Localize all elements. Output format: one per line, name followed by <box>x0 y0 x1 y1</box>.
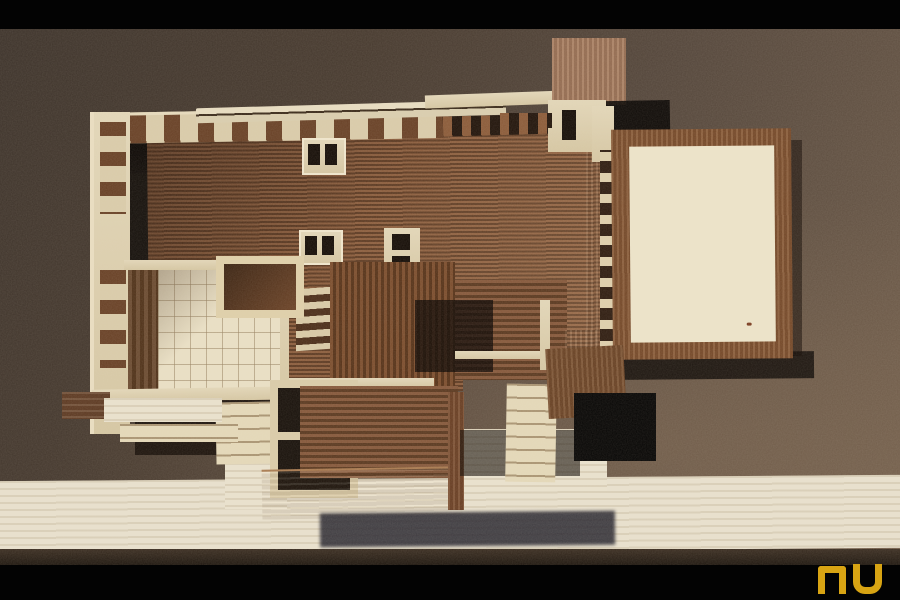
skylight-1-opening-right <box>325 144 337 165</box>
wing-cast-shadow <box>320 511 615 548</box>
wing-roof <box>300 386 458 478</box>
frame-left-slats-lower <box>100 270 126 368</box>
skylight-box-1 <box>302 138 346 175</box>
board-below-band <box>0 549 900 565</box>
letterbox-top <box>0 0 900 29</box>
left-terrace-floor-planks <box>128 268 160 394</box>
mid-shadow <box>415 300 493 372</box>
logo-glyph-n-icon <box>818 566 846 594</box>
bracket-notch <box>562 110 576 140</box>
chimney-tall-opening-top <box>392 234 410 250</box>
frame-left-slats-upper <box>100 122 126 214</box>
bottom-left-brown-block <box>62 392 110 419</box>
dentil-band-small <box>500 113 552 128</box>
courtyard-floor-knot <box>747 323 752 326</box>
top-deck-block <box>552 38 626 105</box>
photo-slide <box>0 0 900 600</box>
skylight-1-opening-left <box>308 144 320 165</box>
model-photograph <box>0 29 900 565</box>
frame-left-band <box>90 112 130 434</box>
watermark-logo <box>818 568 882 594</box>
courtyard-floor-panel <box>629 145 776 342</box>
black-shadow-square <box>574 393 656 461</box>
logo-glyph-u-icon <box>853 564 882 594</box>
bottom-left-light-slab-2 <box>120 424 238 442</box>
ridge-strip-right <box>425 91 565 109</box>
courtyard-frame <box>611 128 793 360</box>
skylight-2-opening-left <box>305 236 317 255</box>
letterbox-bottom <box>0 565 900 600</box>
skylight-box-2 <box>299 230 343 265</box>
roof-right-rail <box>586 138 599 353</box>
skylight-2-opening-right <box>322 236 334 255</box>
terrace-small-room <box>216 256 304 318</box>
bottom-left-light-slab <box>104 398 222 422</box>
